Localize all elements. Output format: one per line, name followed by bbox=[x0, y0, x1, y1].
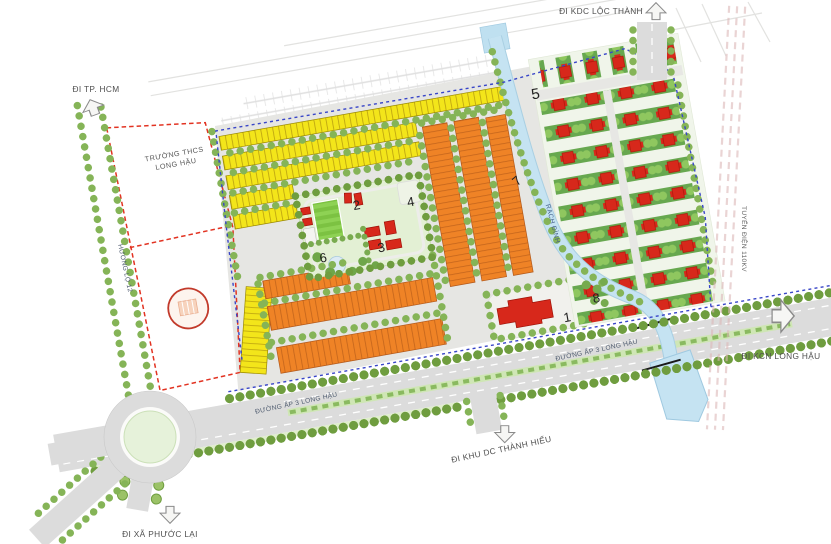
label-tp-hcm: ĐI TP. HCM bbox=[73, 84, 120, 94]
label-kdc-loc-thanh: ĐI KDC LỘC THÀNH bbox=[559, 6, 643, 16]
background-streets-ne bbox=[672, 2, 770, 62]
power-line-corridor bbox=[707, 6, 745, 430]
masterplan-canvas: TRƯỜNG THCS LONG HẬU bbox=[0, 0, 831, 544]
label-tuyen-dien-110kv: TUYẾN ĐIỆN 110KV bbox=[740, 206, 750, 272]
direction-arrow-phuoc-lai bbox=[160, 506, 180, 523]
label-kcn-long-hau: ĐI KCN LONG HẬU bbox=[741, 351, 820, 361]
label-phuoc-lai: ĐI XÃ PHƯỚC LẠI bbox=[122, 529, 198, 539]
masterplan-map: TRƯỜNG THCS LONG HẬU bbox=[0, 0, 831, 544]
direction-arrow-kdc bbox=[646, 3, 666, 20]
roundabout-island bbox=[124, 411, 176, 463]
road-north-kdc bbox=[633, 22, 671, 80]
